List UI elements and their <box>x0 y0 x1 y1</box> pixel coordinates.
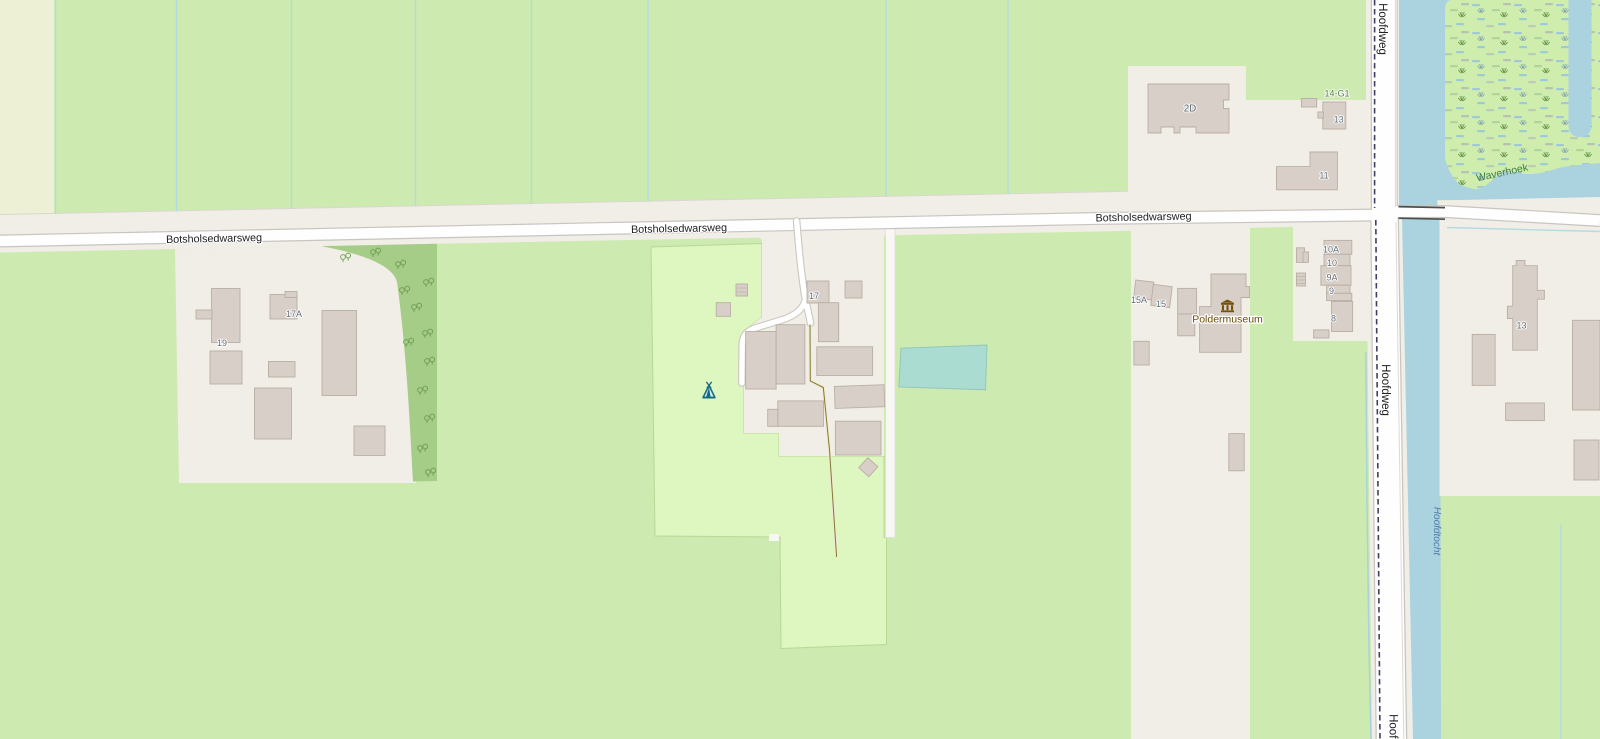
svg-text:2D: 2D <box>1184 104 1197 115</box>
svg-text:17A: 17A <box>286 309 302 319</box>
svg-text:13: 13 <box>1334 115 1344 125</box>
svg-text:10: 10 <box>1327 258 1337 268</box>
svg-text:14-G1: 14-G1 <box>1324 89 1349 99</box>
svg-text:17: 17 <box>809 291 819 301</box>
svg-text:9: 9 <box>1329 286 1334 296</box>
svg-text:15A: 15A <box>1131 295 1147 305</box>
svg-text:11: 11 <box>1319 171 1328 181</box>
svg-text:13: 13 <box>1516 321 1526 331</box>
svg-text:19: 19 <box>217 338 227 348</box>
svg-text:Poldermuseum: Poldermuseum <box>1192 314 1263 326</box>
svg-text:10A: 10A <box>1323 245 1339 255</box>
svg-text:Botsholsedwarsweg: Botsholsedwarsweg <box>166 232 262 246</box>
svg-text:Hoofdtocht: Hoofdtocht <box>1431 507 1442 557</box>
svg-text:Botsholsedwarsweg: Botsholsedwarsweg <box>1095 210 1191 224</box>
svg-text:9A: 9A <box>1326 273 1337 283</box>
svg-text:15: 15 <box>1156 299 1166 309</box>
svg-text:Hoofdweg: Hoofdweg <box>1376 3 1388 55</box>
svg-text:8: 8 <box>1331 314 1336 324</box>
svg-text:Hoofdweg: Hoofdweg <box>1387 714 1399 739</box>
svg-text:Hoofdweg: Hoofdweg <box>1379 364 1391 416</box>
svg-text:Botsholsedwarsweg: Botsholsedwarsweg <box>631 222 727 236</box>
